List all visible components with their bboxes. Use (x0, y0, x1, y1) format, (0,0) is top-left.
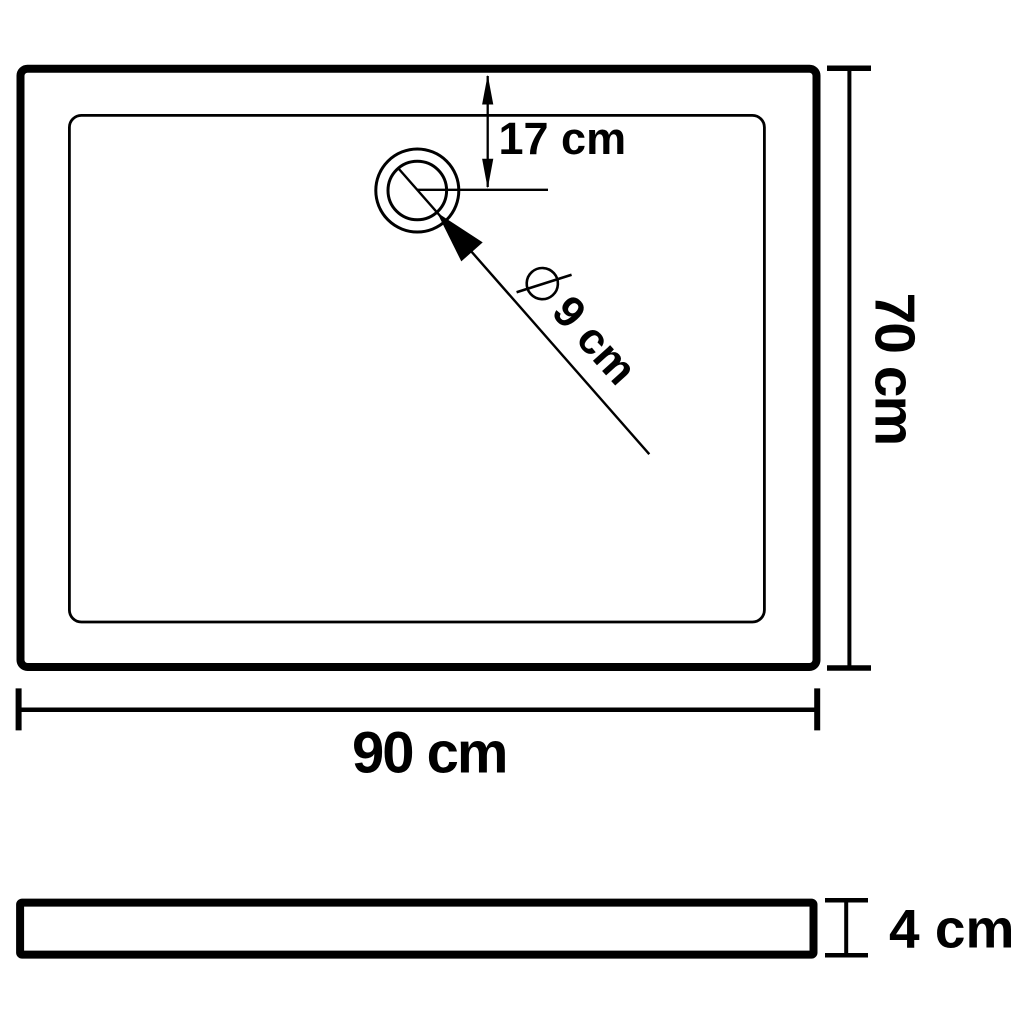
svg-text:70 cm: 70 cm (863, 293, 927, 445)
svg-text:90 cm: 90 cm (352, 720, 506, 785)
svg-text:17 cm: 17 cm (499, 113, 627, 164)
svg-text:4 cm: 4 cm (889, 898, 1014, 960)
